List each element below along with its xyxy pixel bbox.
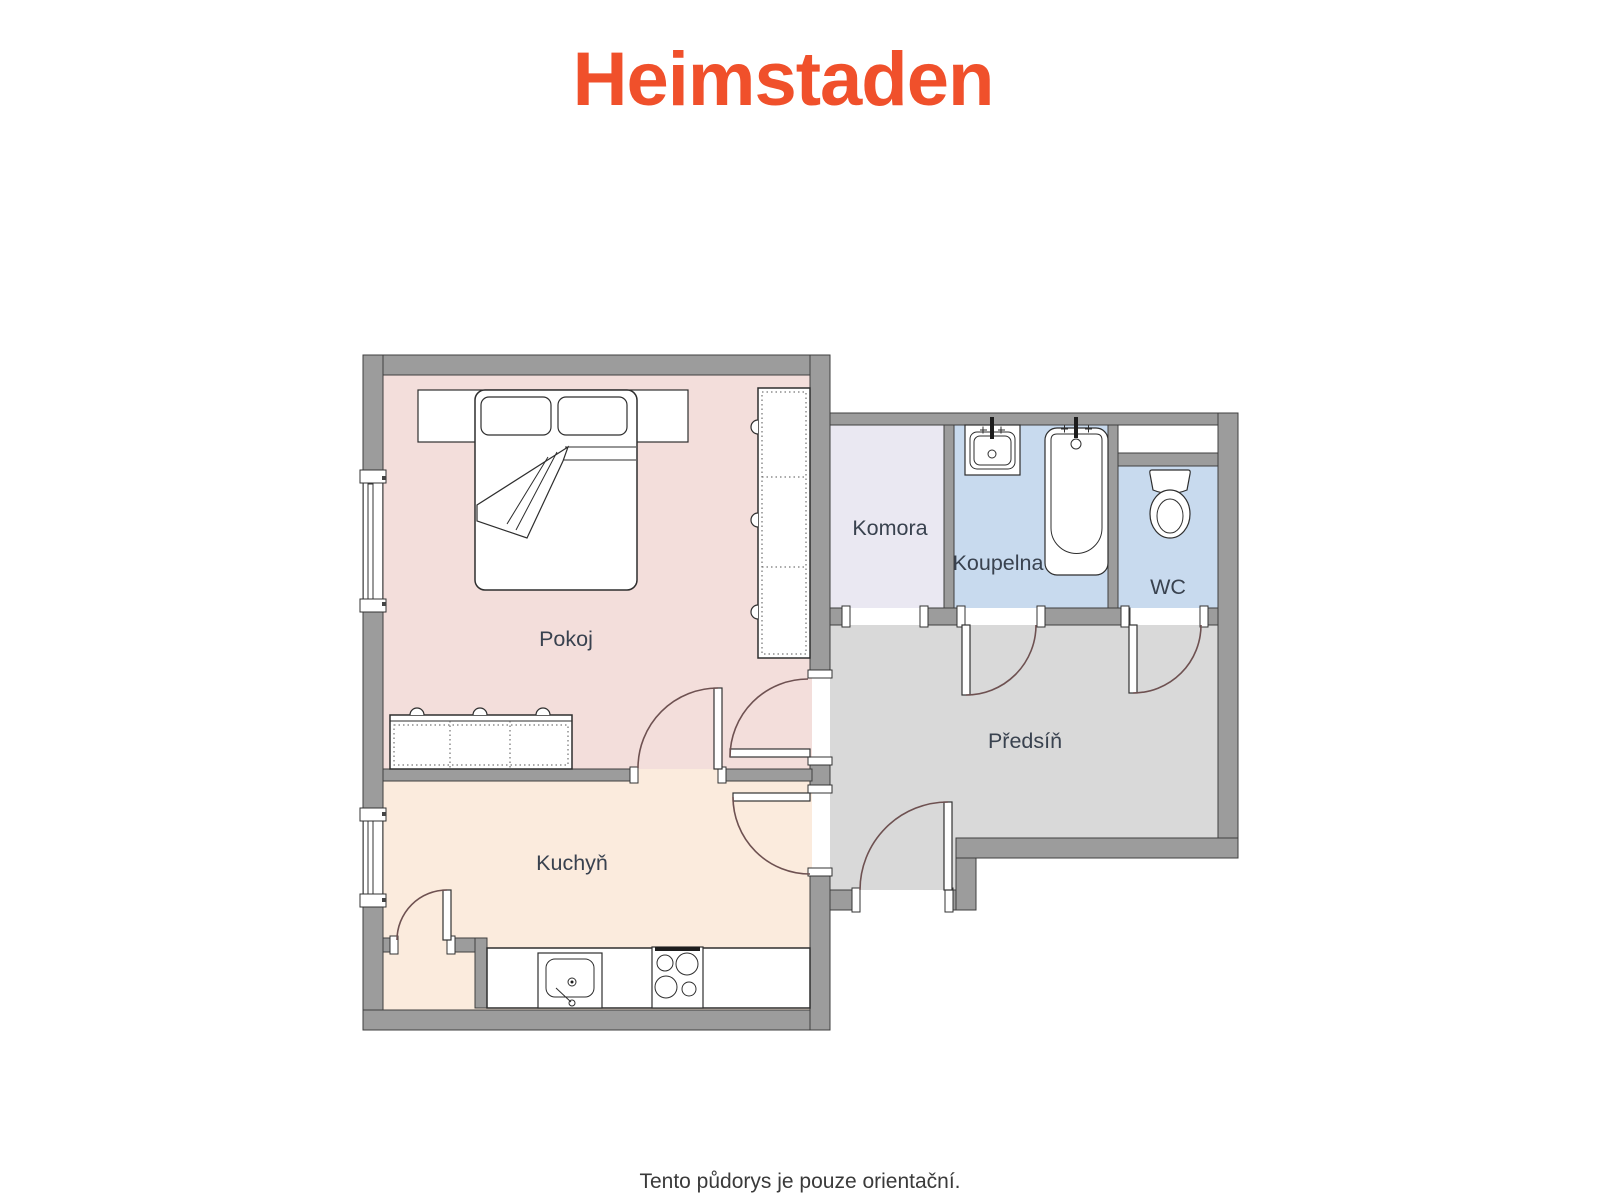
pillow [558, 397, 627, 435]
kitchen-counter [487, 948, 810, 1008]
disclaimer-caption: Tento půdorys je pouze orientační. [639, 1170, 960, 1194]
label-komora: Komora [852, 516, 927, 540]
kitchen-sink [538, 953, 602, 1008]
door-leaf-pokoj-kuchyn [714, 688, 722, 769]
wall-segment [383, 769, 638, 781]
door-leaf-entrance [944, 802, 952, 890]
wall-segment [363, 355, 830, 375]
shaft-niche [1118, 425, 1218, 453]
label-koupelna: Koupelna [953, 551, 1044, 575]
kuchyn-furniture [487, 947, 810, 1008]
wall-segment [956, 838, 1238, 858]
wall-segment [1218, 413, 1238, 858]
wall-segment [718, 769, 812, 781]
door-leaf-alcove [443, 890, 451, 940]
door-leaf-kuchyn-predsin [733, 793, 810, 801]
wall-segment [830, 413, 1238, 425]
wall-segment [1118, 453, 1218, 466]
bathtub [1045, 417, 1108, 575]
label-pokoj: Pokoj [539, 627, 593, 651]
wall-segment [944, 425, 954, 608]
door-leaf-wc [1129, 625, 1137, 693]
bathroom-sink [965, 417, 1020, 475]
stove [652, 947, 703, 1008]
wall-segment [475, 938, 487, 1008]
floorplan-page: Heimstaden [0, 0, 1600, 1200]
door-leaf-pokoj-predsin [730, 749, 810, 757]
wall-segment [1037, 608, 1130, 625]
floor-plan: Pokoj Kuchyň Komora Koupelna WC Předsíň [0, 0, 1600, 1200]
wall-segment [1108, 425, 1118, 608]
label-kuchyn: Kuchyň [536, 851, 608, 875]
dresser [390, 708, 572, 769]
door-leaf-koupelna [962, 625, 970, 695]
wall-segment [363, 355, 383, 1030]
wall-segment [363, 1010, 830, 1030]
label-predsin: Předsíň [988, 729, 1062, 753]
wall-segment [810, 868, 830, 1030]
toilet [1150, 470, 1191, 538]
pillow [481, 397, 551, 435]
label-wc: WC [1150, 575, 1186, 599]
wall-segment [810, 355, 830, 678]
wardrobe [751, 388, 810, 658]
